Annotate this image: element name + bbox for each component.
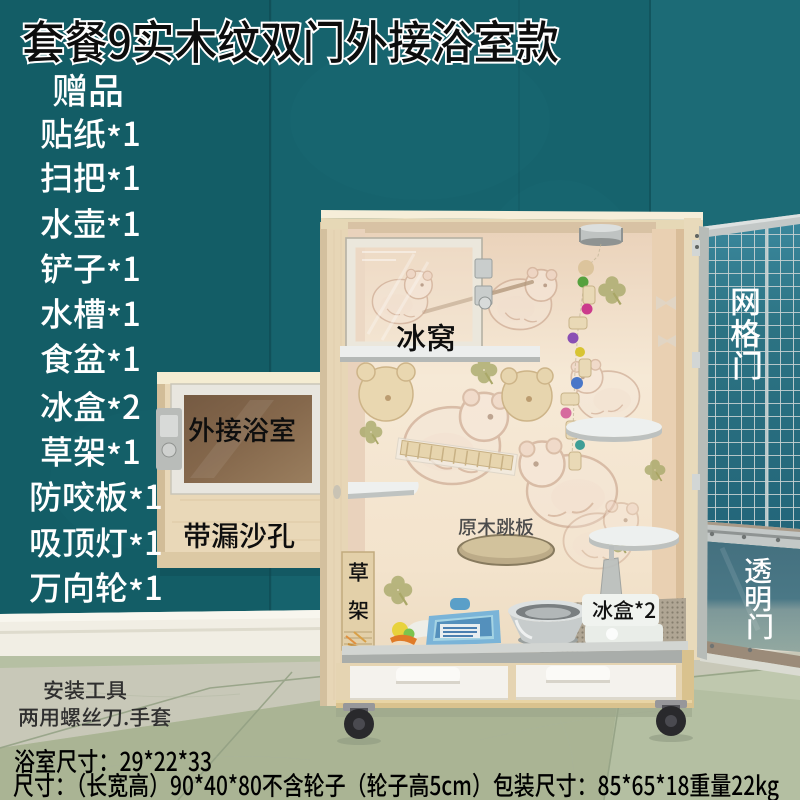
svg-text:两用螺丝刀.手套: 两用螺丝刀.手套 (18, 702, 171, 732)
svg-text:门: 门 (732, 341, 763, 386)
svg-text:草: 草 (348, 557, 369, 587)
svg-text:原木跳板: 原木跳板 (458, 513, 534, 540)
svg-text:门: 门 (746, 606, 774, 646)
svg-text:万向轮*1: 万向轮*1 (29, 562, 163, 615)
svg-text:食盆*1: 食盆*1 (40, 333, 141, 386)
svg-text:冰窝: 冰窝 (396, 314, 456, 358)
svg-text:带漏沙孔: 带漏沙孔 (183, 515, 295, 555)
svg-text:冰盒*2: 冰盒*2 (592, 595, 656, 625)
svg-text:安装工具: 安装工具 (43, 675, 127, 705)
svg-text:架: 架 (348, 595, 369, 625)
svg-text:尺寸：（长宽高）90*40*80不含轮子（轮子高5cm）包装: 尺寸：（长宽高）90*40*80不含轮子（轮子高5cm）包装尺寸：85*65*1… (13, 766, 779, 800)
svg-text:外接浴室: 外接浴室 (188, 409, 296, 448)
